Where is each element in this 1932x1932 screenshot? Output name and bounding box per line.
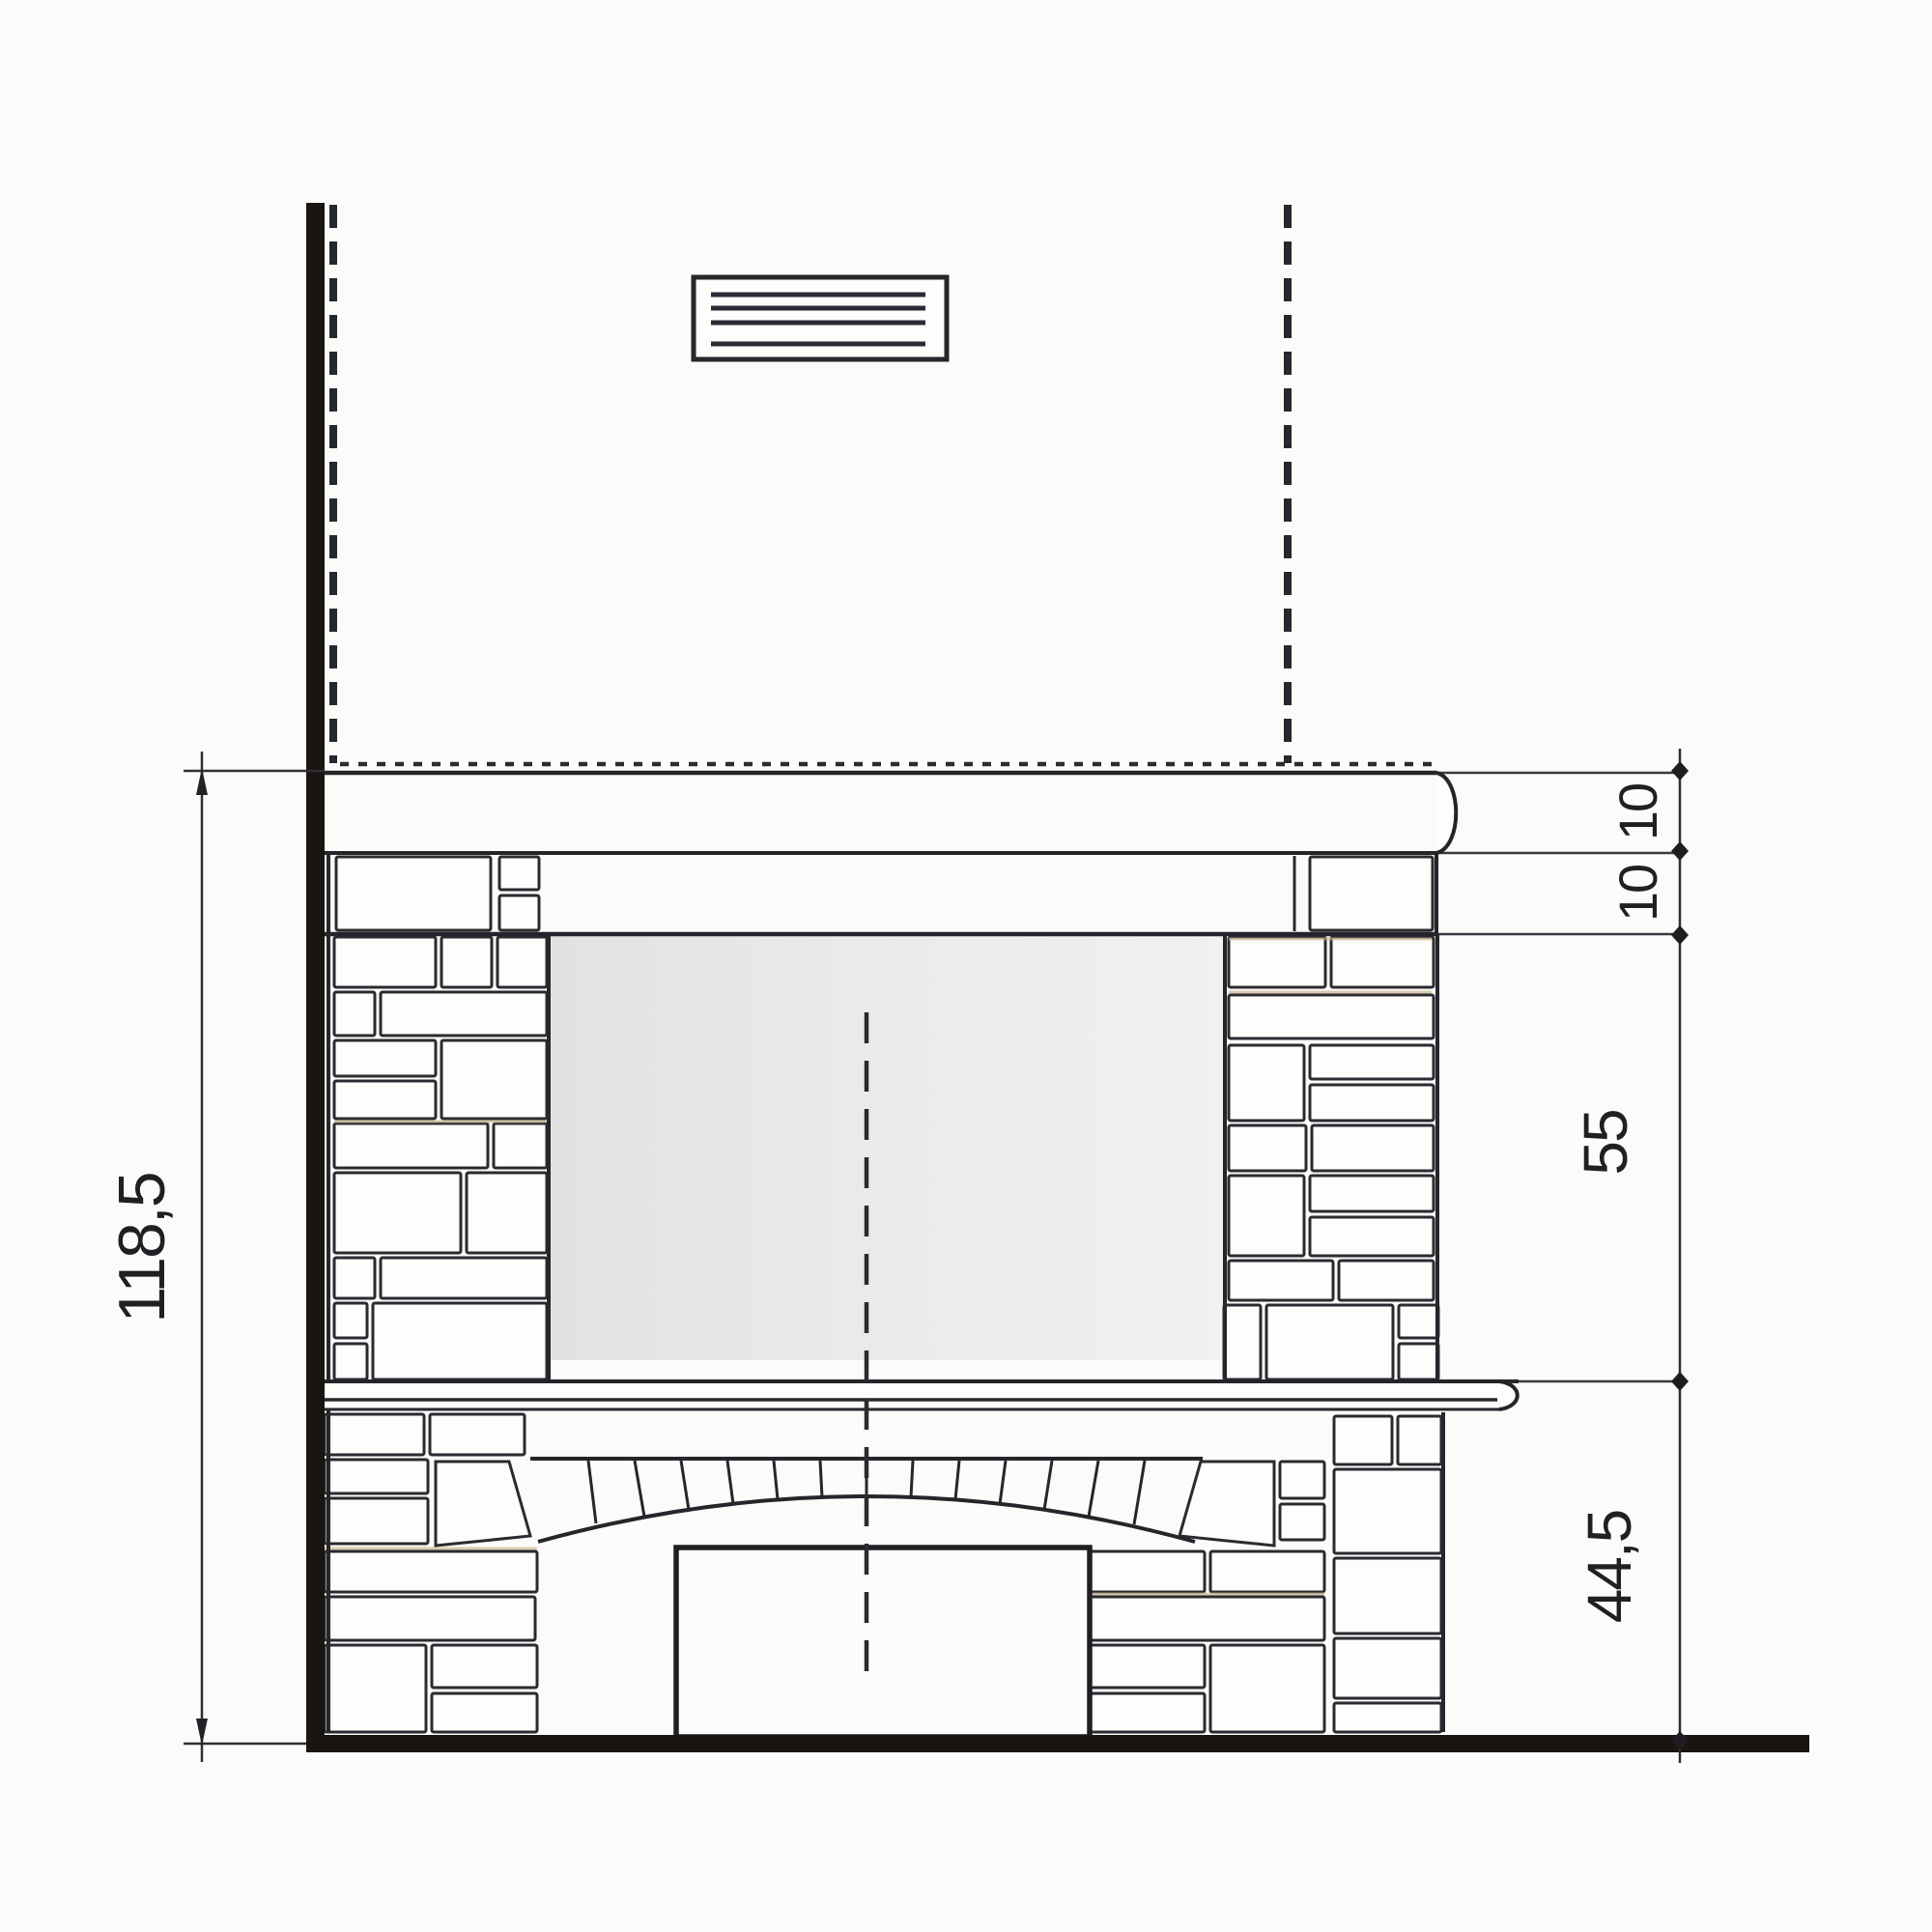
dimension-label-lintel: 10	[1607, 866, 1668, 922]
brick	[1229, 1176, 1304, 1256]
firebox-grey-panel	[551, 935, 1224, 1360]
brick	[325, 1460, 428, 1493]
brick	[1229, 937, 1325, 987]
dimension-label-base: 44,5	[1575, 1511, 1644, 1624]
brick	[1339, 1261, 1434, 1300]
brick	[325, 1551, 537, 1592]
brick	[1229, 1045, 1304, 1121]
vent-grille-frame	[694, 277, 947, 359]
floor-line	[306, 1735, 1809, 1752]
brick	[499, 857, 539, 890]
brick	[1310, 1085, 1434, 1121]
brick	[1312, 1125, 1434, 1171]
brick	[1210, 1645, 1324, 1732]
brick	[1334, 1703, 1441, 1732]
voussoir-joint	[911, 1461, 913, 1497]
brick	[334, 1173, 461, 1253]
brick	[430, 1414, 525, 1455]
hearth-shelf	[318, 1381, 1682, 1409]
brick	[1210, 1551, 1324, 1592]
dimension-label-firebox: 55	[1571, 1110, 1640, 1175]
brick	[1280, 1462, 1324, 1498]
brick	[1334, 1638, 1441, 1698]
voussoir-joint	[820, 1461, 822, 1497]
brick	[1087, 1693, 1205, 1732]
brick	[325, 1498, 428, 1544]
hearth-shelf-body	[321, 1383, 1517, 1408]
brick	[1310, 857, 1433, 930]
brick	[1310, 1045, 1434, 1079]
brick	[1310, 1217, 1434, 1256]
wall-section-line	[306, 203, 325, 1750]
base-pier-right	[1334, 1416, 1441, 1732]
dimension-label-total-height: 118,5	[105, 1173, 179, 1322]
brick	[1334, 1558, 1441, 1634]
brick	[1229, 1125, 1306, 1171]
brick	[441, 937, 492, 987]
brick	[494, 1123, 547, 1168]
brick	[1398, 1416, 1441, 1464]
brick	[334, 1123, 488, 1168]
brick	[432, 1693, 537, 1732]
brick	[499, 895, 539, 930]
brick	[334, 1081, 436, 1119]
brick	[1224, 1305, 1261, 1379]
brick	[334, 937, 436, 987]
brick	[334, 1258, 375, 1298]
firebox-interior	[551, 935, 1224, 1360]
brick	[325, 1597, 535, 1640]
brick	[1399, 1305, 1438, 1338]
brick	[1229, 1261, 1333, 1300]
brick	[1087, 1645, 1205, 1688]
brick	[334, 1344, 367, 1379]
brick	[441, 1040, 547, 1119]
brick	[1310, 1176, 1434, 1211]
fireplace-elevation-diagram: 118,5 10 10 55 44,5	[0, 0, 1932, 1932]
brick	[1280, 1504, 1324, 1540]
brick-column-left	[334, 937, 547, 1379]
brick	[325, 1645, 426, 1732]
vent-grille	[694, 277, 947, 359]
brick	[334, 1303, 367, 1338]
wood-storage-opening	[676, 1548, 1090, 1737]
brick	[1087, 1551, 1205, 1592]
brick-column-right	[1224, 937, 1438, 1379]
brick	[1087, 1597, 1324, 1640]
brick	[1229, 995, 1434, 1038]
brick	[432, 1645, 537, 1688]
brick	[1334, 1416, 1392, 1464]
technical-drawing-canvas: 118,5 10 10 55 44,5	[0, 0, 1932, 1932]
brick	[334, 992, 375, 1036]
dimension-label-cap: 10	[1607, 784, 1668, 840]
brick	[1266, 1305, 1393, 1379]
brick	[467, 1173, 547, 1253]
brick	[1331, 937, 1434, 987]
brick	[1334, 1469, 1441, 1553]
brick	[1399, 1344, 1438, 1379]
brick	[334, 1040, 436, 1076]
brick	[381, 992, 547, 1036]
brick	[497, 937, 547, 987]
brick	[381, 1258, 547, 1298]
brick	[336, 857, 491, 930]
brick	[373, 1303, 547, 1379]
brick	[325, 1414, 424, 1455]
